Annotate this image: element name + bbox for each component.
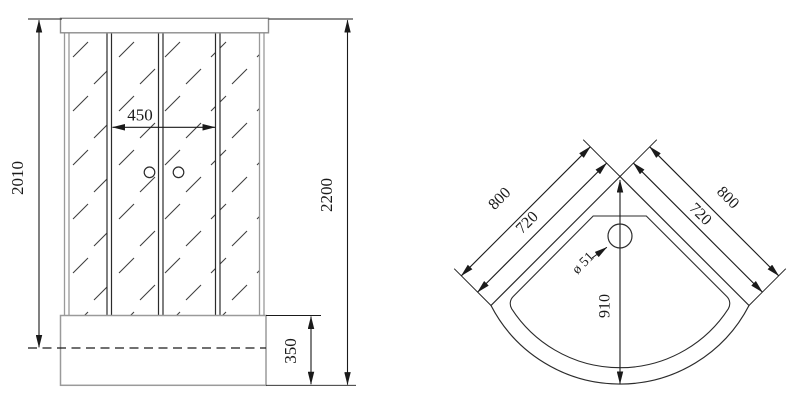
dim-total-height: 2200 bbox=[317, 20, 348, 384]
dim-350-label: 350 bbox=[281, 338, 300, 364]
dim-glass-section-height: 2010 bbox=[8, 20, 39, 347]
dim-tray-height: 350 bbox=[281, 317, 311, 385]
top-view: 800 720 800 720 910 ø 51 bbox=[454, 140, 786, 384]
door-handle-left bbox=[144, 167, 155, 178]
glass-panel-door-right bbox=[163, 33, 216, 316]
dim-450-label: 450 bbox=[127, 106, 153, 125]
dim-800-left-label: 800 bbox=[485, 184, 514, 213]
front-view: 450 2010 2200 350 bbox=[8, 18, 356, 385]
drawing-canvas: 450 2010 2200 350 bbox=[0, 0, 789, 411]
glass-panel-fixed-left bbox=[69, 33, 107, 316]
door-handle-right bbox=[173, 167, 184, 178]
dim-2010-label: 2010 bbox=[8, 161, 27, 195]
dim-720-right-label: 720 bbox=[686, 200, 715, 229]
cabin-top-cap bbox=[61, 18, 269, 33]
technical-drawing: 450 2010 2200 350 bbox=[0, 0, 789, 411]
base-tray bbox=[61, 316, 267, 386]
glass-panel-fixed-right bbox=[220, 33, 260, 316]
dim-800-right-label: 800 bbox=[713, 183, 742, 212]
dim-910-label: 910 bbox=[597, 294, 614, 318]
dim-2200-label: 2200 bbox=[317, 178, 336, 212]
